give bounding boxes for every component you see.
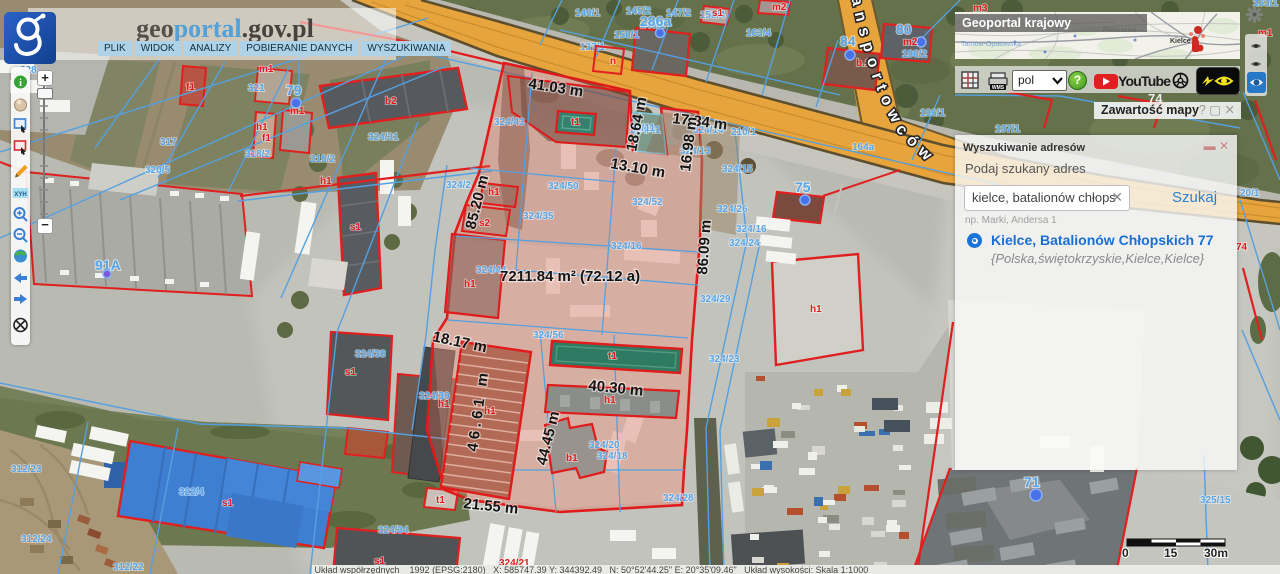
svg-text:317: 317 — [160, 137, 177, 148]
svg-text:324/16: 324/16 — [736, 224, 767, 235]
svg-text:n: n — [610, 56, 616, 67]
svg-text:163/4: 163/4 — [746, 28, 771, 39]
svg-text:324/35: 324/35 — [523, 211, 554, 222]
svg-text:i: i — [19, 78, 22, 89]
svg-text:324/28: 324/28 — [663, 493, 694, 504]
svg-text:196/2: 196/2 — [902, 49, 927, 60]
svg-text:324/16: 324/16 — [611, 241, 642, 252]
svg-text:Tarnów-Opatowska: Tarnów-Opatowska — [961, 41, 1021, 48]
svg-text:b2: b2 — [385, 96, 397, 107]
svg-text:15: 15 — [1164, 546, 1178, 560]
svg-text:30m: 30m — [1204, 546, 1228, 560]
svg-text:322/4: 322/4 — [179, 487, 204, 498]
svg-text:84: 84 — [840, 33, 856, 49]
svg-text:s1: s1 — [345, 367, 357, 378]
svg-text:Kielce: Kielce — [1170, 38, 1191, 45]
svg-text:t1: t1 — [571, 117, 580, 128]
svg-text:324/15: 324/15 — [722, 164, 753, 175]
svg-text:s1: s1 — [712, 8, 724, 19]
svg-text:324/43: 324/43 — [494, 117, 525, 128]
svg-text:XYH: XYH — [14, 192, 26, 198]
svg-text:74: 74 — [1236, 242, 1248, 253]
svg-text:t1: t1 — [436, 495, 445, 506]
svg-text:s1: s1 — [350, 222, 362, 233]
svg-text:80: 80 — [896, 21, 912, 37]
svg-text:196/1: 196/1 — [920, 108, 945, 119]
svg-text:324/38: 324/38 — [355, 349, 386, 360]
svg-text:324/31: 324/31 — [368, 132, 399, 143]
svg-text:h1: h1 — [488, 187, 500, 198]
svg-text:312/24: 312/24 — [21, 534, 52, 545]
svg-text:324/26: 324/26 — [717, 204, 748, 215]
svg-text:164a: 164a — [852, 142, 875, 153]
svg-text:320/5: 320/5 — [145, 165, 170, 176]
svg-text:WMS: WMS — [992, 85, 1005, 90]
svg-text:79: 79 — [286, 82, 302, 98]
svg-text:m2: m2 — [772, 2, 787, 13]
svg-text:312/22: 312/22 — [113, 562, 144, 573]
svg-text:319/2: 319/2 — [310, 154, 335, 165]
svg-text:0: 0 — [1122, 546, 1129, 560]
svg-text:324/50: 324/50 — [548, 181, 579, 192]
svg-text:324/2: 324/2 — [446, 180, 471, 191]
svg-text:f1: f1 — [262, 133, 271, 144]
svg-text:197/1: 197/1 — [995, 124, 1020, 135]
svg-text:324/20: 324/20 — [589, 440, 620, 451]
svg-text:324/24: 324/24 — [729, 238, 760, 249]
svg-text:f1: f1 — [186, 82, 195, 93]
svg-text:286a: 286a — [640, 13, 671, 29]
svg-text:20/1: 20/1 — [1240, 188, 1260, 199]
svg-text:t1: t1 — [608, 351, 617, 362]
svg-text:325/15: 325/15 — [1200, 495, 1231, 506]
svg-text:7211.84 m² (72.12 a): 7211.84 m² (72.12 a) — [500, 268, 640, 285]
svg-text:318/2: 318/2 — [245, 149, 270, 160]
svg-text:h1: h1 — [320, 176, 332, 187]
svg-text:m1: m1 — [290, 106, 305, 117]
svg-text:m2: m2 — [903, 37, 918, 48]
svg-text:324/29: 324/29 — [700, 294, 731, 305]
svg-text:324/52: 324/52 — [632, 197, 663, 208]
svg-text:s1: s1 — [222, 498, 234, 509]
svg-text:210/1: 210/1 — [731, 127, 756, 138]
svg-text:h1: h1 — [464, 279, 476, 290]
svg-text:324/23: 324/23 — [709, 354, 740, 365]
svg-text:71: 71 — [1024, 474, 1040, 490]
svg-text:b1: b1 — [566, 453, 578, 464]
svg-text:321: 321 — [248, 83, 265, 94]
svg-text:146/1: 146/1 — [575, 8, 600, 19]
svg-text:324/18: 324/18 — [597, 451, 628, 462]
svg-text:324/56: 324/56 — [533, 330, 564, 341]
svg-text:m1: m1 — [259, 64, 274, 75]
svg-text:75: 75 — [795, 179, 811, 195]
svg-text:324/34: 324/34 — [378, 525, 409, 536]
svg-text:312/23: 312/23 — [11, 464, 42, 475]
svg-text:h1: h1 — [256, 122, 268, 133]
svg-text:158/1: 158/1 — [614, 30, 639, 41]
svg-text:h1: h1 — [810, 304, 822, 315]
